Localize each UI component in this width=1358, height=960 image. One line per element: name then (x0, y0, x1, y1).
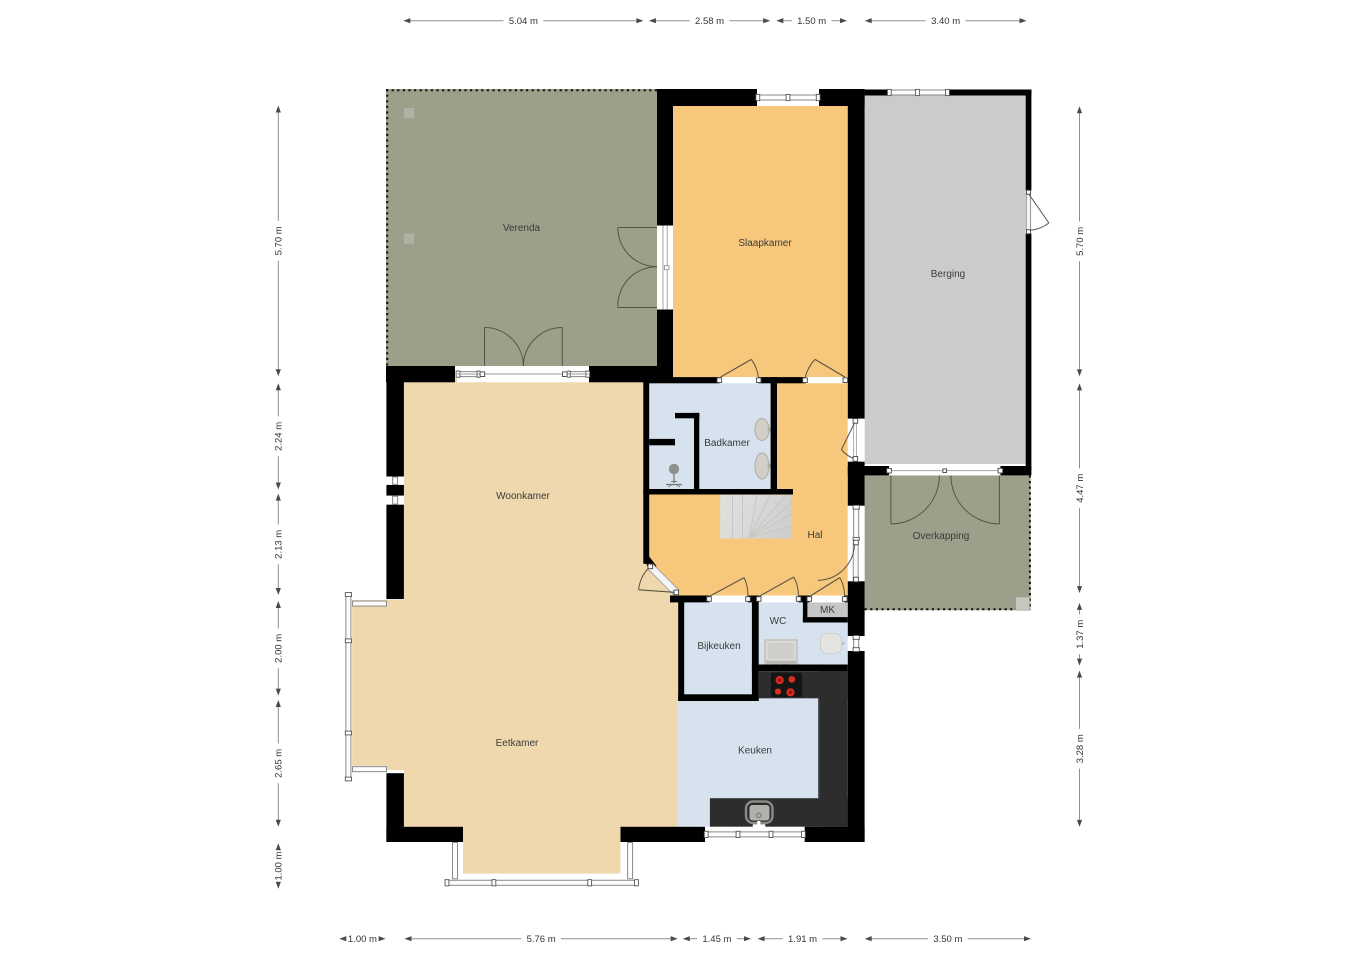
svg-text:5.76 m: 5.76 m (527, 934, 556, 945)
svg-text:2.00 m: 2.00 m (274, 634, 285, 663)
svg-text:1.50 m: 1.50 m (797, 16, 826, 27)
svg-text:2.24 m: 2.24 m (274, 422, 285, 451)
svg-text:3.28 m: 3.28 m (1075, 734, 1086, 763)
svg-text:Bijkeuken: Bijkeuken (697, 641, 740, 652)
svg-text:Hal: Hal (807, 530, 822, 541)
svg-text:1.37 m: 1.37 m (1075, 620, 1086, 649)
svg-text:Keuken: Keuken (738, 746, 772, 757)
svg-text:5.70 m: 5.70 m (274, 226, 285, 255)
svg-text:1.00 m: 1.00 m (348, 934, 377, 945)
svg-text:3.40 m: 3.40 m (931, 16, 960, 27)
svg-text:4.47 m: 4.47 m (1075, 474, 1086, 503)
svg-text:1.91 m: 1.91 m (788, 934, 817, 945)
svg-text:WC: WC (770, 616, 787, 627)
svg-text:2.65 m: 2.65 m (274, 749, 285, 778)
svg-text:3.50 m: 3.50 m (933, 934, 962, 945)
svg-text:Slaapkamer: Slaapkamer (738, 238, 792, 249)
svg-text:1.00 m: 1.00 m (274, 851, 285, 880)
svg-text:Badkamer: Badkamer (704, 438, 750, 449)
svg-text:Overkapping: Overkapping (913, 531, 970, 542)
svg-text:5.70 m: 5.70 m (1075, 227, 1086, 256)
svg-text:Woonkamer: Woonkamer (496, 491, 550, 502)
svg-text:Verenda: Verenda (503, 223, 541, 234)
svg-text:5.04 m: 5.04 m (509, 16, 538, 27)
svg-text:MK: MK (820, 605, 835, 616)
svg-text:2.58 m: 2.58 m (695, 16, 724, 27)
svg-text:Eetkamer: Eetkamer (496, 738, 539, 749)
svg-text:2.13 m: 2.13 m (274, 530, 285, 559)
svg-text:Berging: Berging (931, 269, 965, 280)
svg-text:1.45 m: 1.45 m (702, 934, 731, 945)
